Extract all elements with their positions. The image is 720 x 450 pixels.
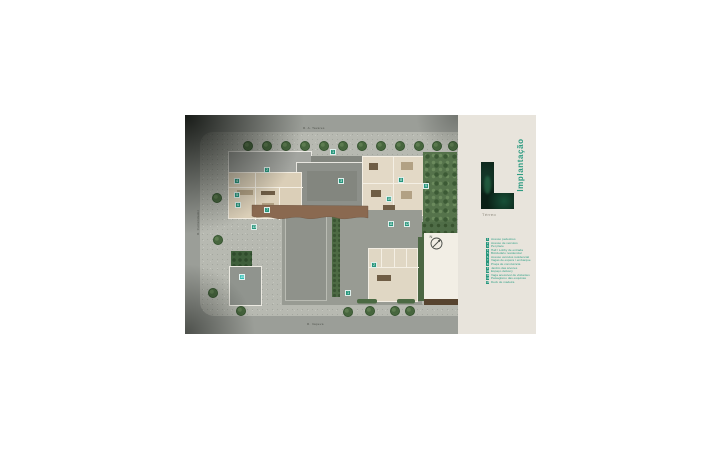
amenity-marker: 2 <box>371 262 377 268</box>
tree-highlight <box>367 308 371 312</box>
legend-label: Deck de madeira <box>491 281 514 284</box>
site-plan: N 123456789101112132110 R. A. Tavares R.… <box>185 115 458 334</box>
legend-number: 13 <box>486 281 489 284</box>
tree-highlight <box>283 143 287 147</box>
amenity-marker: 13 <box>251 224 257 230</box>
trees-layer <box>208 141 457 316</box>
tree-highlight <box>302 143 306 147</box>
tree-highlight <box>321 143 325 147</box>
plan-decoration-layer: N <box>185 115 458 334</box>
l-monogram-logo <box>481 162 514 209</box>
tree-highlight <box>359 143 363 147</box>
amenity-marker: 8 <box>398 177 404 183</box>
amenity-marker: 1 <box>345 290 351 296</box>
tree-highlight <box>264 143 268 147</box>
legend-list: 1Acesso pedestres2Acesso de veículos3Pet… <box>486 238 534 284</box>
street-name-top: R. A. Tavares <box>303 126 325 130</box>
amenity-marker: 9 <box>423 183 429 189</box>
tree-highlight <box>397 143 401 147</box>
tree-highlight <box>392 308 396 312</box>
tree-highlight <box>407 308 411 312</box>
tree-highlight <box>214 195 218 199</box>
amenity-marker: 4 <box>234 178 240 184</box>
amenity-marker: 11 <box>388 221 394 227</box>
street-name-bottom: R. Itapeva <box>307 322 324 326</box>
amenity-marker: 2 <box>264 167 270 173</box>
amenity-marker: 10 <box>239 274 245 280</box>
street-name-left: R. Comendador <box>196 210 200 235</box>
amenity-marker: 3 <box>338 178 344 184</box>
floor-label: Térreo <box>482 212 522 217</box>
tree-highlight <box>345 309 349 313</box>
tree-highlight <box>450 143 454 147</box>
amenity-marker: 6 <box>235 202 241 208</box>
amenity-marker: 10 <box>386 196 392 202</box>
bush-icon <box>357 299 377 304</box>
tree-highlight <box>245 143 249 147</box>
amenity-marker: 5 <box>234 192 240 198</box>
amenity-marker: 7 <box>264 207 270 213</box>
page-title: Implantação <box>516 135 528 195</box>
amenity-marker: 1 <box>330 149 336 155</box>
logo-leaf-texture <box>484 176 491 194</box>
tree-highlight <box>210 290 214 294</box>
info-panel: Implantação Térreo 1Acesso pedestres2Ace… <box>458 115 536 334</box>
tree-highlight <box>340 143 344 147</box>
tree-highlight <box>416 143 420 147</box>
compass-north-label: N <box>430 234 433 239</box>
north-compass-icon: N <box>430 234 443 249</box>
amenity-marker: 12 <box>404 221 410 227</box>
tree-highlight <box>434 143 438 147</box>
bush-icon <box>397 299 415 304</box>
logo-bar <box>481 193 514 209</box>
tree-highlight <box>238 308 242 312</box>
site-plan-artwork: N 123456789101112132110 R. A. Tavares R.… <box>185 115 536 334</box>
tree-highlight <box>378 143 382 147</box>
page: N 123456789101112132110 R. A. Tavares R.… <box>0 0 720 450</box>
legend-item: 13Deck de madeira <box>486 281 534 285</box>
tree-highlight <box>215 237 219 241</box>
